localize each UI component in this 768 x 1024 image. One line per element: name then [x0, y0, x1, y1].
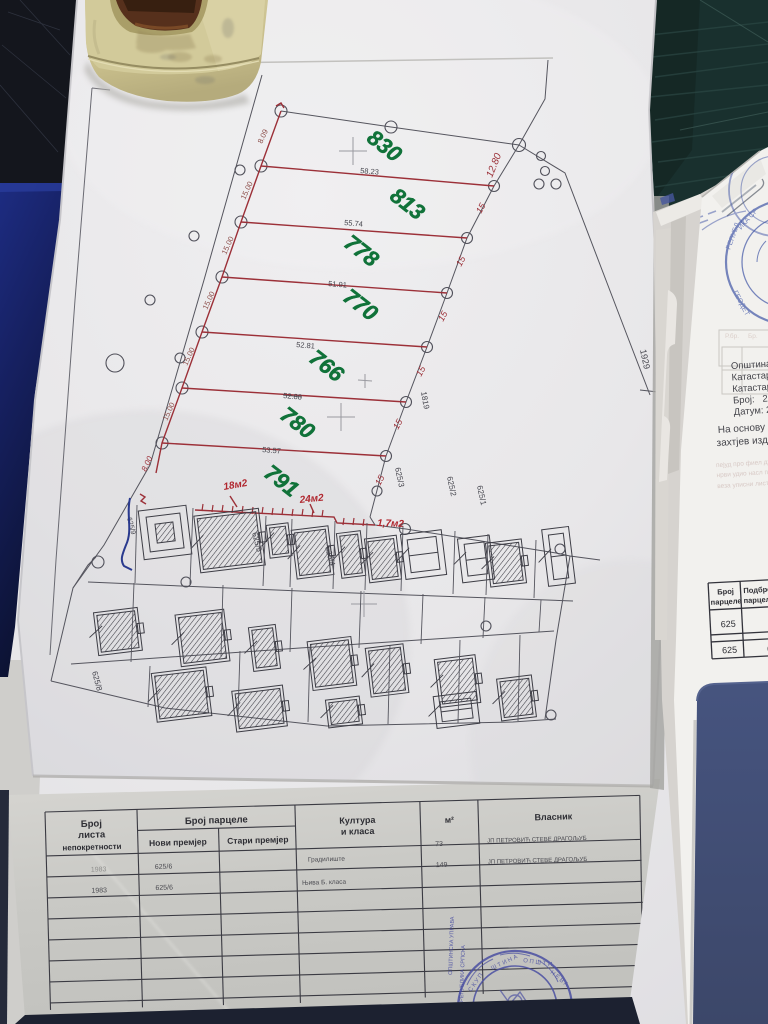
svg-text:1983: 1983: [91, 866, 107, 873]
svg-text:53.57: 53.57: [262, 445, 281, 456]
svg-text:парцеле: парцеле: [710, 596, 741, 607]
svg-text:51.91: 51.91: [328, 279, 347, 290]
svg-text:Датум: 2: Датум: 2: [733, 405, 768, 418]
svg-text:149: 149: [436, 862, 448, 869]
svg-text:625: 625: [722, 645, 738, 656]
svg-text:листа: листа: [78, 829, 106, 841]
svg-text:Нови премјер: Нови премјер: [149, 836, 207, 848]
svg-text:Култура: Култура: [339, 815, 376, 826]
svg-text:Р.бр.: Р.бр.: [725, 332, 739, 340]
svg-text:Градилиште: Градилиште: [308, 856, 346, 864]
svg-text:парцел.: парцел.: [743, 595, 768, 606]
svg-text:55.74: 55.74: [344, 218, 363, 229]
svg-text:1,7м2: 1,7м2: [377, 518, 405, 530]
svg-text:Стари премјер: Стари премјер: [227, 834, 289, 846]
svg-text:Број: Број: [717, 587, 734, 597]
svg-text:625: 625: [721, 619, 737, 630]
svg-text:непокретности: непокретности: [62, 842, 121, 853]
svg-text:Број: Број: [81, 818, 102, 830]
svg-text:1983: 1983: [91, 887, 107, 894]
svg-text:Бр.: Бр.: [748, 333, 758, 340]
svg-text:73: 73: [435, 841, 443, 848]
svg-text:Њива Б. класа: Њива Б. класа: [302, 879, 347, 887]
svg-text:Власник: Власник: [534, 811, 572, 822]
svg-text:58.23: 58.23: [360, 166, 379, 177]
svg-text:52.81: 52.81: [296, 340, 315, 351]
svg-text:625/6: 625/6: [155, 863, 173, 870]
svg-text:м²: м²: [445, 815, 455, 825]
svg-text:Подбро: Подбро: [743, 585, 768, 595]
svg-text:Број парцеле: Број парцеле: [185, 814, 248, 827]
svg-text:625/6: 625/6: [155, 884, 173, 891]
svg-text:и класа: и класа: [341, 826, 376, 837]
